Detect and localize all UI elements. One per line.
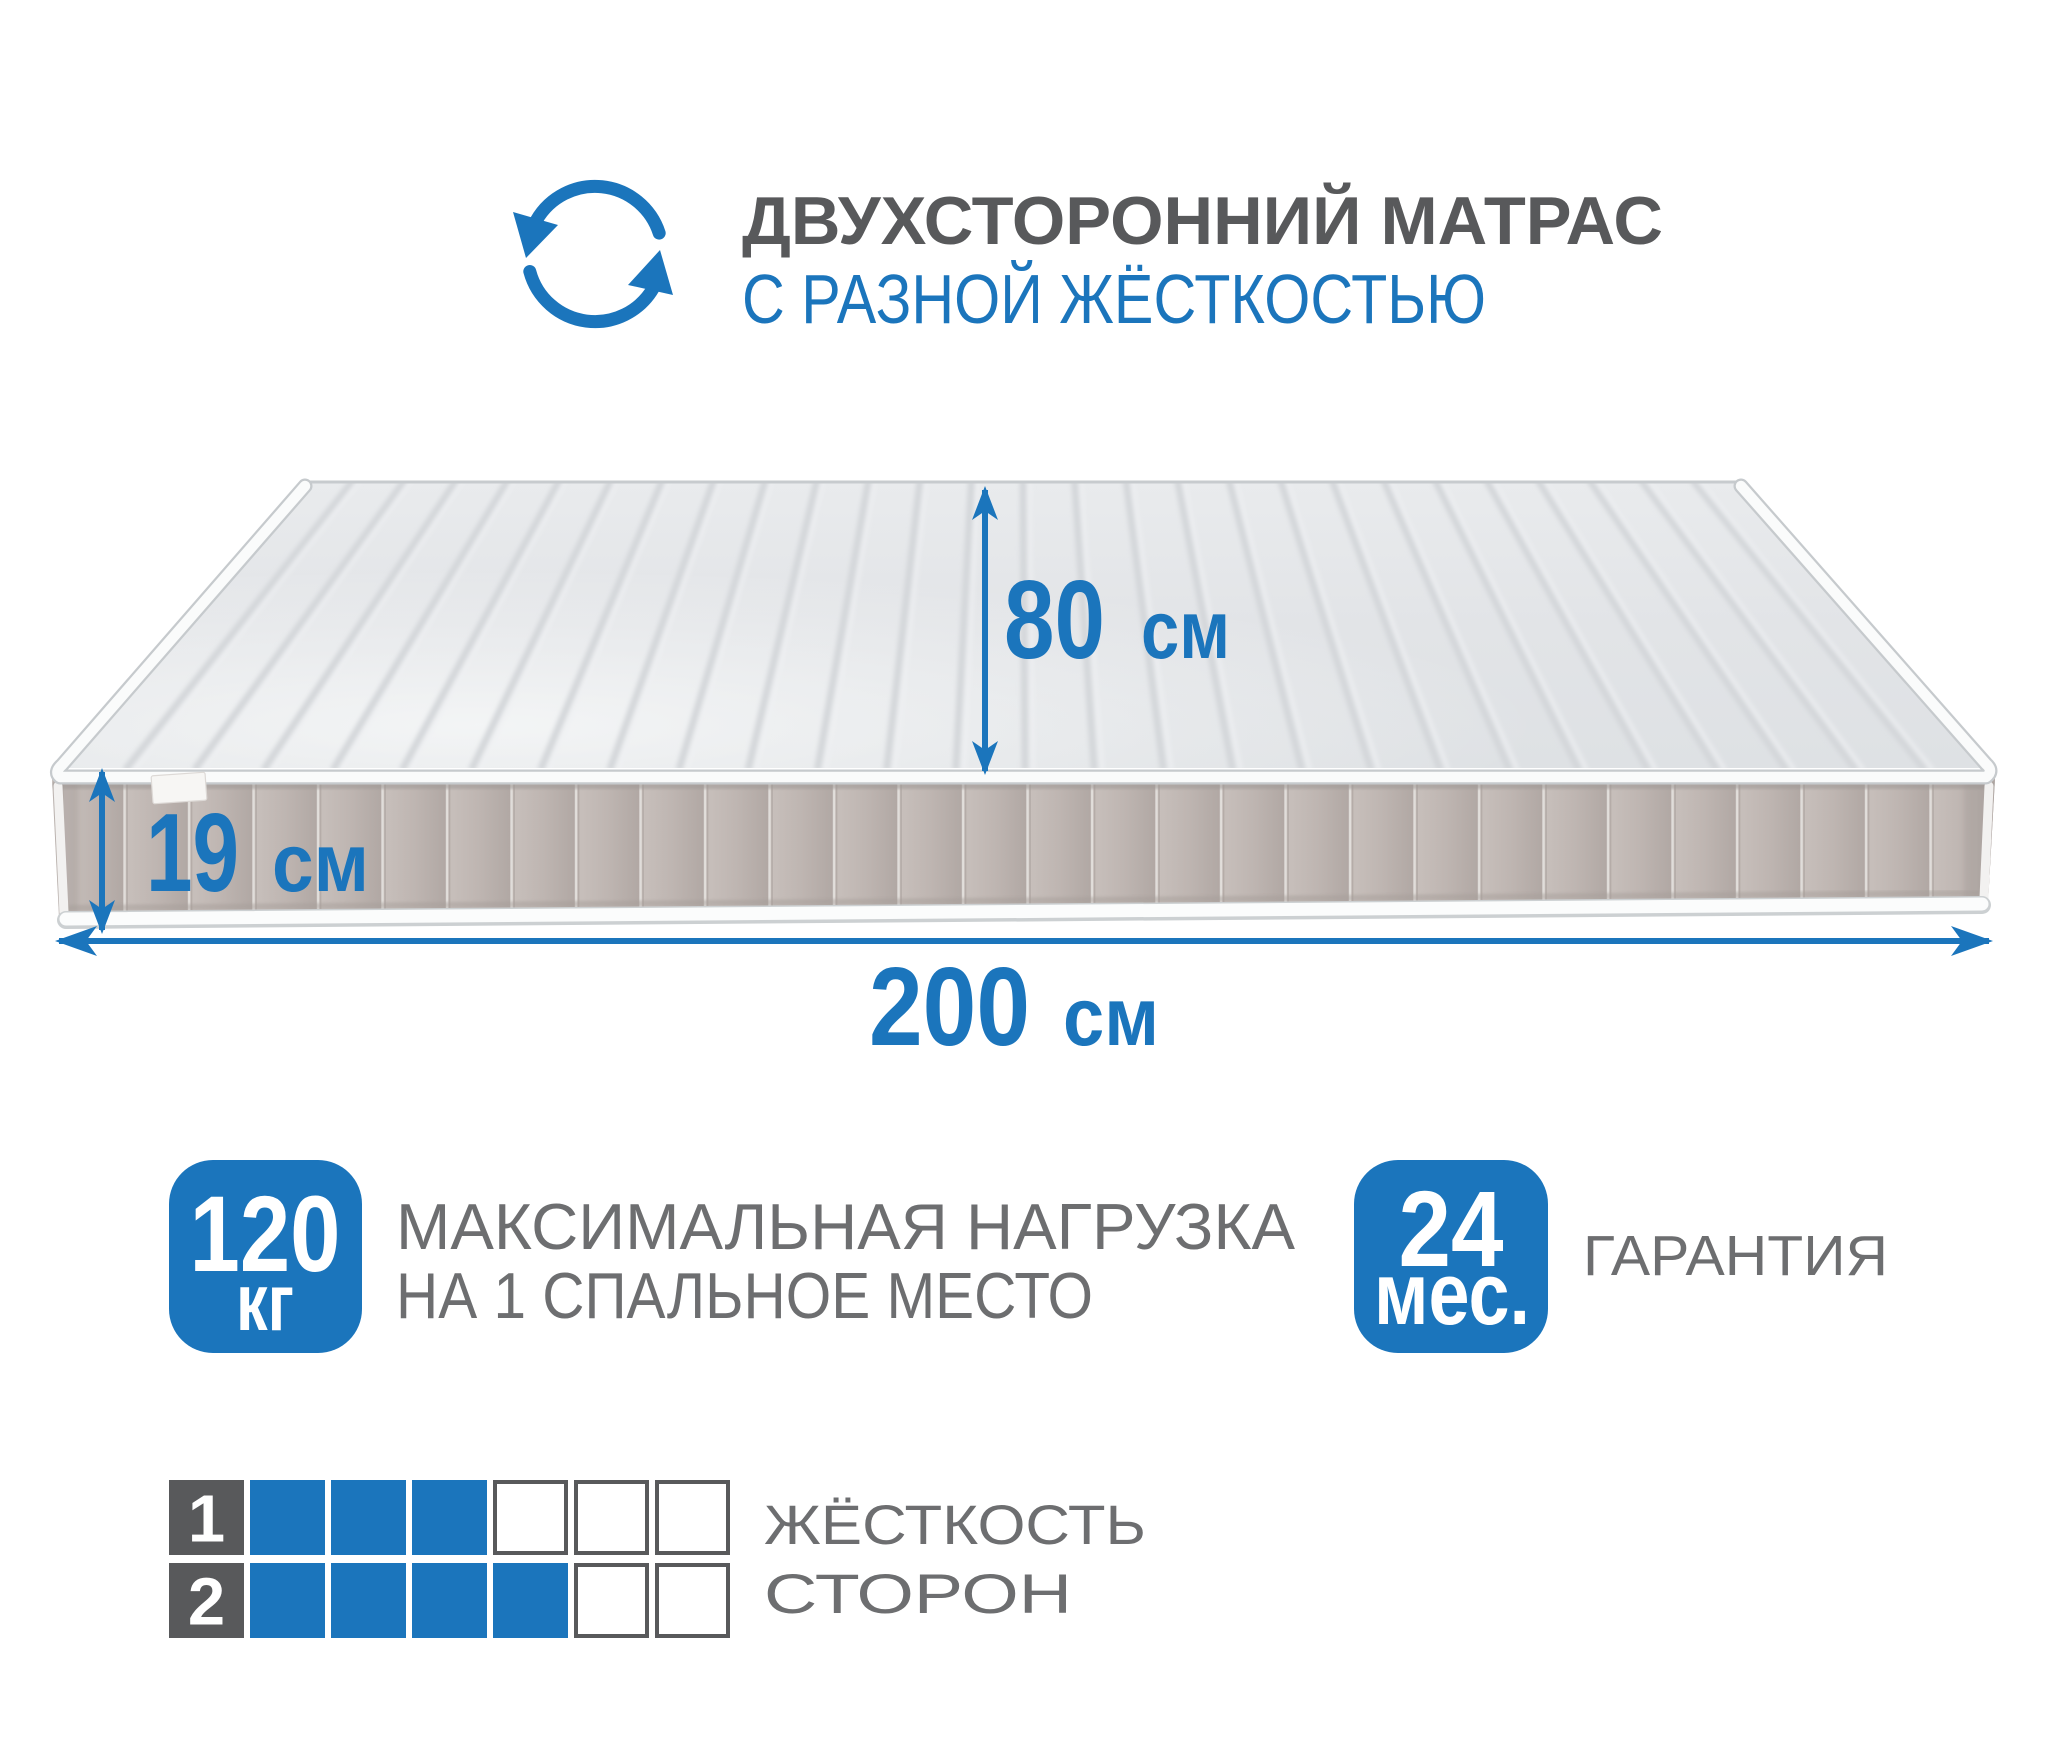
- svg-text:см: см: [272, 816, 369, 909]
- svg-text:200: 200: [869, 945, 1030, 1069]
- svg-text:см: см: [1063, 970, 1159, 1063]
- svg-text:2: 2: [188, 1565, 225, 1640]
- svg-text:МАКСИМАЛЬНАЯ НАГРУЗКА: МАКСИМАЛЬНАЯ НАГРУЗКА: [396, 1190, 1296, 1263]
- svg-text:СТОРОН: СТОРОН: [764, 1562, 1072, 1625]
- svg-text:см: см: [1141, 583, 1230, 676]
- svg-text:ГАРАНТИЯ: ГАРАНТИЯ: [1583, 1224, 1888, 1288]
- svg-text:ДВУХСТОРОННИЙ МАТРАС: ДВУХСТОРОННИЙ МАТРАС: [742, 182, 1663, 259]
- svg-text:1: 1: [188, 1482, 225, 1557]
- svg-text:19: 19: [146, 791, 239, 915]
- svg-text:кг: кг: [236, 1258, 294, 1348]
- svg-text:С РАЗНОЙ ЖЁСТКОСТЬЮ: С РАЗНОЙ ЖЁСТКОСТЬЮ: [742, 259, 1486, 338]
- svg-text:мес.: мес.: [1374, 1244, 1530, 1343]
- svg-text:ЖЁСТКОСТЬ: ЖЁСТКОСТЬ: [764, 1493, 1146, 1556]
- svg-text:80: 80: [1004, 558, 1105, 682]
- svg-text:НА 1 СПАЛЬНОЕ МЕСТО: НА 1 СПАЛЬНОЕ МЕСТО: [396, 1259, 1093, 1332]
